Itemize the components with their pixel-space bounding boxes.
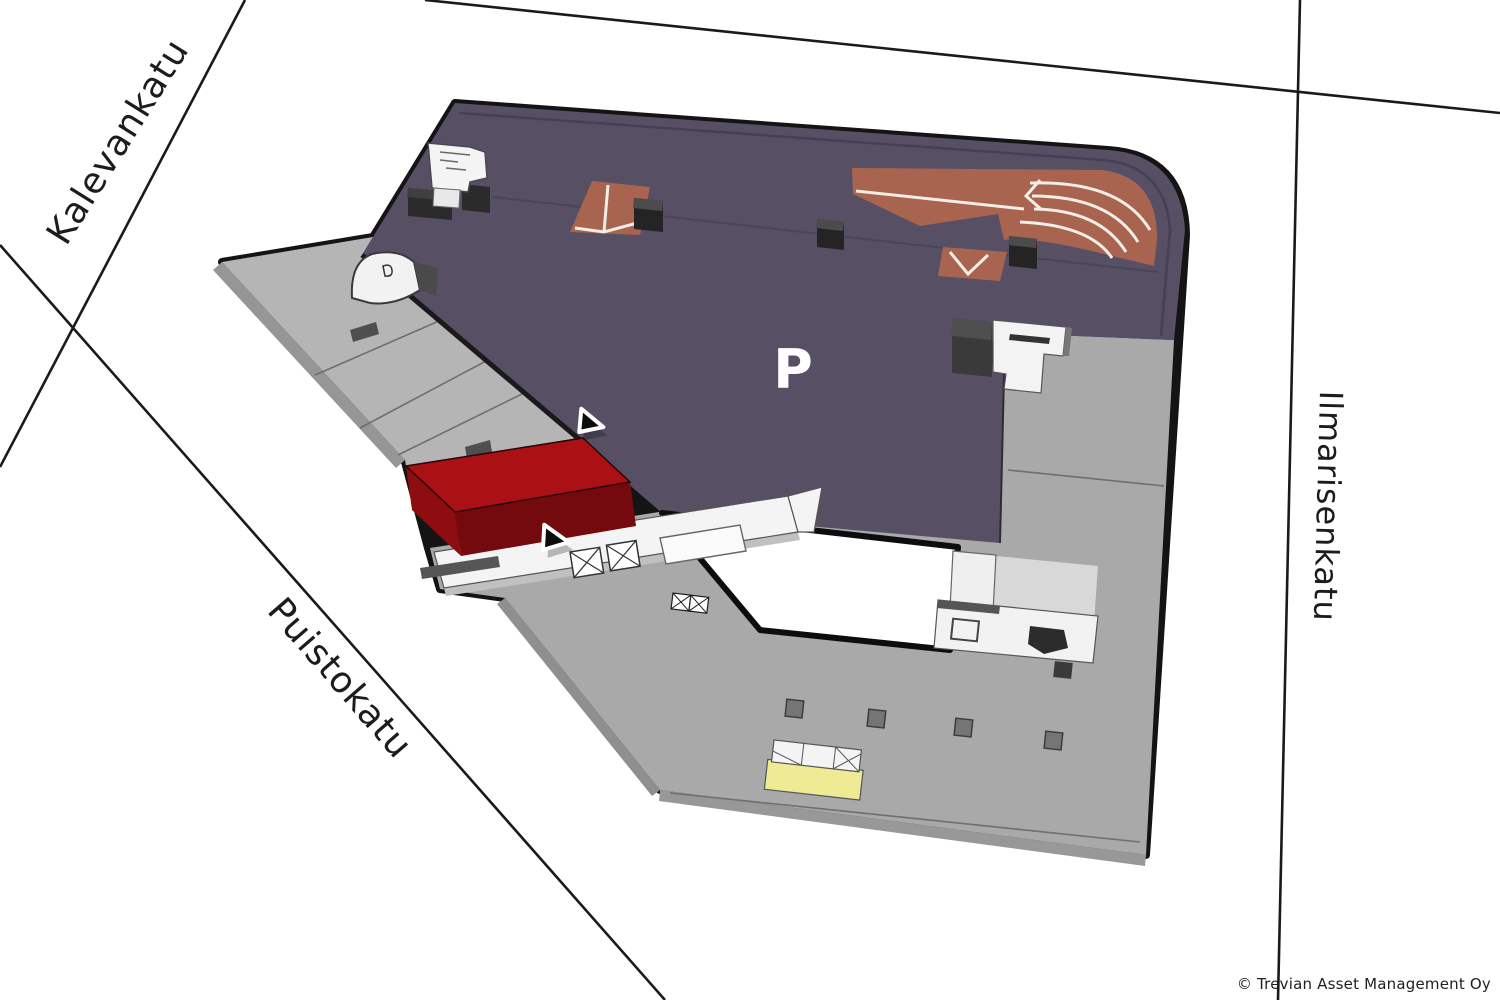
small-ramp-surface [938, 247, 1007, 281]
street-label-kalevankatu: Kalevankatu [39, 32, 198, 252]
service-vent [1053, 661, 1073, 679]
shaft-cube [633, 198, 663, 232]
street-label-ilmarisenkatu: Ilmarisenkatu [1306, 390, 1350, 622]
kalevankatu-street-line [0, 0, 245, 467]
shaft-cube [816, 219, 844, 250]
loading-dock [764, 740, 865, 801]
street-label-puistokatu: Puistokatu [259, 590, 420, 766]
shaft-cube [1008, 236, 1037, 269]
roof-vent [954, 718, 973, 737]
roof-vent [867, 709, 886, 728]
roof-vent [1044, 731, 1063, 750]
ilmarisenkatu-street-line [1278, 0, 1300, 1000]
north-street-line [425, 0, 1500, 113]
lightwell-square [951, 619, 979, 642]
site-plan-map: Kalevankatu Puistokatu Ilmarisenkatu [0, 0, 1500, 1000]
roof-vent [785, 699, 804, 718]
copyright-notice: © Trevian Asset Management Oy [1237, 975, 1491, 993]
parking-level-label: P [773, 338, 813, 401]
parking-plan-page: Kalevankatu Puistokatu Ilmarisenkatu [0, 0, 1500, 1000]
small-ramp [938, 247, 1007, 281]
